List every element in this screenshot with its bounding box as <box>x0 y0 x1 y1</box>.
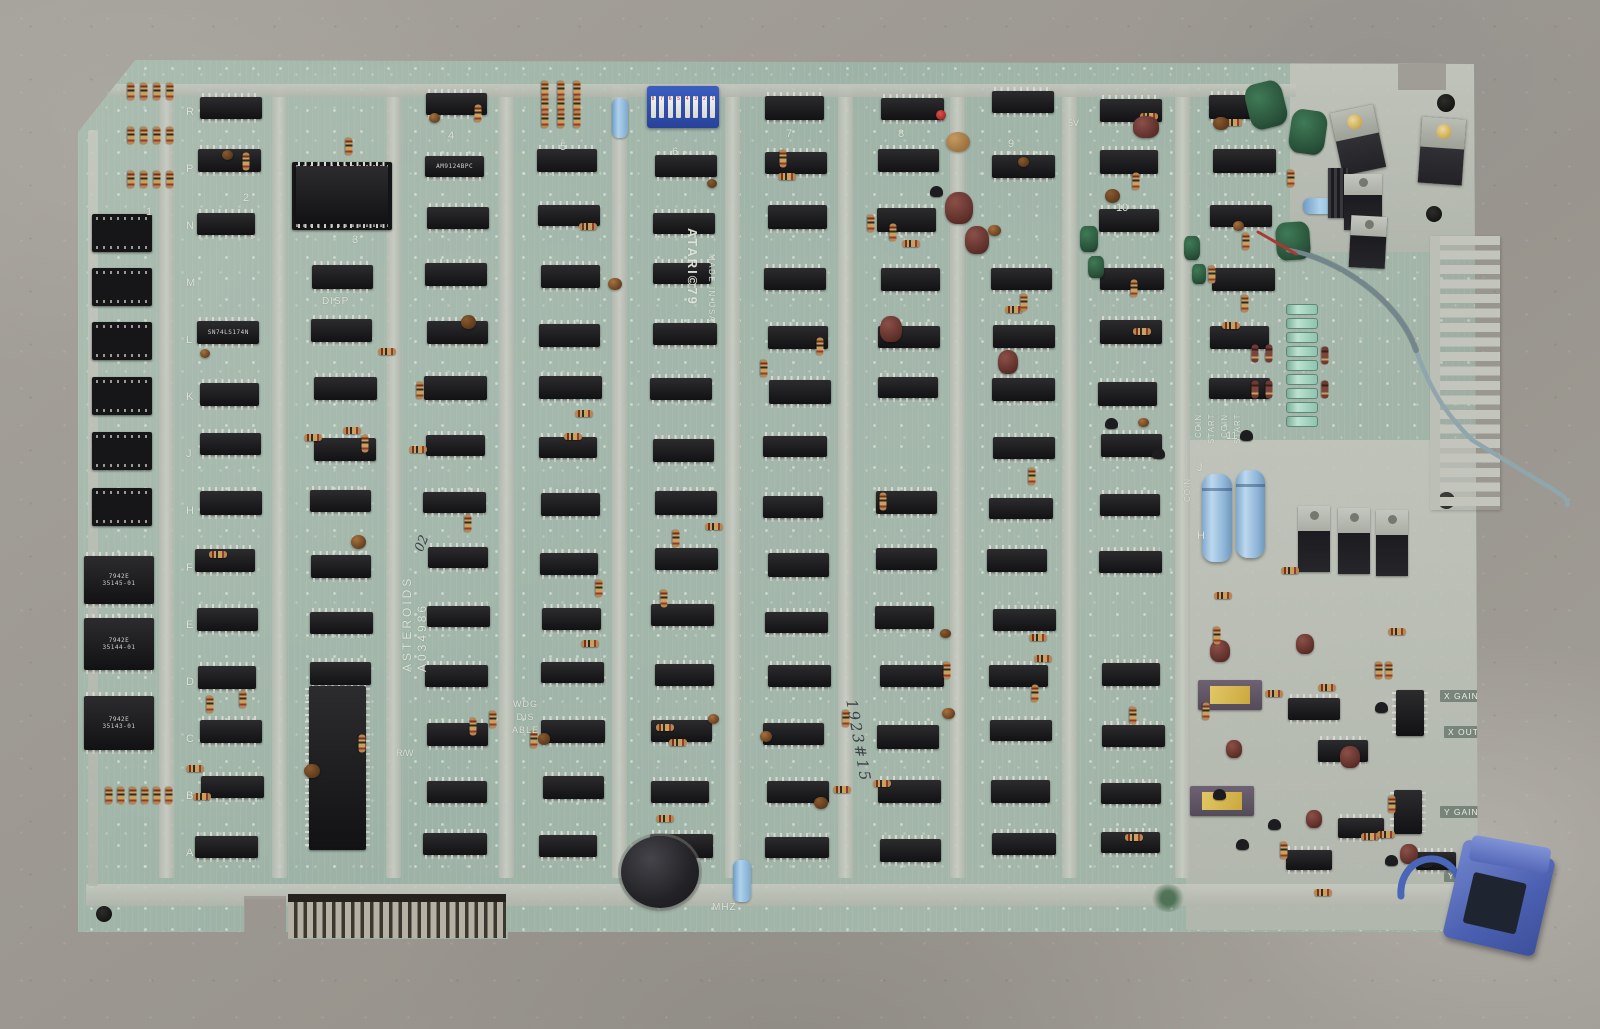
ic-chip <box>991 268 1052 290</box>
ic-chip <box>426 435 485 457</box>
resistor <box>1133 328 1151 335</box>
resistor <box>574 111 581 129</box>
grid-row-letter: K <box>186 391 193 403</box>
ic-chip <box>655 664 715 687</box>
resistor <box>206 695 213 713</box>
maroon-capacitor <box>965 226 989 254</box>
ic-chip <box>1102 663 1160 686</box>
resistor <box>705 523 723 530</box>
ic-chip <box>881 268 941 292</box>
ic-chip <box>423 492 486 514</box>
resistor <box>760 360 767 378</box>
resistor <box>780 150 787 168</box>
ic-chip <box>427 723 488 746</box>
ic-chip <box>200 433 261 455</box>
ic-chip <box>537 149 596 172</box>
dip-switch-toggle: 4 <box>685 96 690 118</box>
eprom-label-line: 35144-01 <box>103 644 136 652</box>
ic-chip <box>539 376 602 399</box>
eprom-label: 7942E35143-01 <box>84 696 154 750</box>
ic-chip <box>877 208 936 232</box>
maroon-capacitor <box>1210 640 1230 662</box>
ic-chip <box>992 91 1053 113</box>
resistor <box>242 153 249 171</box>
disc-capacitor <box>814 797 828 809</box>
resistor <box>656 724 674 731</box>
top-right-cutout <box>1398 64 1446 90</box>
dip-switch-toggle: 6 <box>668 96 673 118</box>
ic-chip <box>427 207 489 229</box>
resistor <box>154 787 161 805</box>
resistor <box>378 348 396 355</box>
resistor <box>193 793 211 800</box>
dip-switch-toggle: 8 <box>651 96 656 118</box>
grid-column-number: 5 <box>560 141 566 153</box>
resistor <box>1389 795 1396 813</box>
resistor <box>166 787 173 805</box>
maroon-capacitor <box>1296 634 1314 654</box>
ic-chip <box>653 263 711 284</box>
grid-row-letter-right: J <box>1197 462 1203 474</box>
resistor <box>1034 655 1052 662</box>
resistor <box>346 137 353 155</box>
resistor <box>1266 381 1273 399</box>
resistor <box>595 580 602 598</box>
maroon-capacitor <box>1400 844 1418 864</box>
silkscreen-asteroids-label: ASTEROIDS A034986 <box>400 576 430 672</box>
ic-chip <box>880 839 941 863</box>
ic-chip <box>768 205 827 229</box>
resistor <box>1029 634 1047 641</box>
grid-row-letter: C <box>186 733 194 745</box>
blue-capacitor <box>733 860 751 902</box>
disc-capacitor <box>1233 221 1244 231</box>
silkscreen-5v-label: 5V <box>1068 118 1079 128</box>
eprom-label-line: 7942E <box>109 716 130 724</box>
transistor <box>1105 418 1118 429</box>
resistor <box>167 127 174 145</box>
grid-column-number: 9 <box>1008 138 1014 150</box>
electrolytic-capacitor <box>1236 470 1265 558</box>
resistor <box>902 240 920 247</box>
resistor <box>1288 169 1295 187</box>
resistor <box>1222 322 1240 329</box>
maroon-capacitor <box>998 350 1018 374</box>
power-bus-trace <box>838 86 853 878</box>
resistor <box>890 224 897 242</box>
silkscreen-coin-start-label: START <box>1207 414 1216 444</box>
resistor <box>1318 684 1336 691</box>
silkscreen-y-gain-label: Y GAIN <box>1440 806 1483 818</box>
resistor <box>1242 233 1249 251</box>
power-bus-trace <box>1062 86 1077 878</box>
ic-chip <box>989 665 1048 687</box>
grid-column-number: 3 <box>352 234 358 246</box>
green-capacitor <box>1275 221 1312 261</box>
ic-chip <box>424 376 487 400</box>
resistor <box>130 787 137 805</box>
resistor <box>1322 347 1329 365</box>
mint-resistor-pack <box>1286 402 1318 413</box>
power-bus-trace <box>499 86 514 878</box>
resistor <box>1209 265 1216 283</box>
ic-chip <box>875 606 934 630</box>
mint-resistor-pack <box>1286 416 1318 427</box>
ic-chip <box>992 378 1055 402</box>
asteroids-pcb: ATARI©79 MADE IN USA ASTEROIDS A034986 0… <box>78 58 1492 940</box>
ic-chip <box>653 439 715 462</box>
grid-column-number: 7 <box>786 128 792 140</box>
resistor <box>475 104 482 122</box>
disc-capacitor <box>708 714 719 724</box>
ic-chip <box>1213 149 1276 173</box>
dip-switch-toggle: 2 <box>702 96 707 118</box>
mint-resistor-pack <box>1286 318 1318 329</box>
resistor <box>490 711 497 729</box>
ic-chip <box>1212 268 1274 290</box>
ic-chip <box>651 604 714 626</box>
blue-capacitor <box>612 98 628 138</box>
ic-chip <box>765 612 828 633</box>
transistor <box>930 186 943 197</box>
ic-chip <box>539 324 599 347</box>
ic-chip <box>314 377 377 399</box>
resistor <box>118 787 125 805</box>
resistor <box>167 171 174 189</box>
resistor <box>1028 467 1035 485</box>
ic-chip <box>651 781 709 803</box>
eprom-chip: 7942E35143-01 <box>84 696 154 750</box>
green-capacitor <box>1080 226 1098 252</box>
silkscreen-x-gain-label: X GAIN <box>1440 690 1483 702</box>
ic-chip <box>425 665 488 687</box>
dip-switch-toggle: 3 <box>693 96 698 118</box>
maroon-capacitor <box>1226 740 1242 758</box>
ic-chip <box>1396 690 1424 736</box>
resistor <box>470 717 477 735</box>
ic-chip <box>311 319 371 342</box>
grid-column-number: 2 <box>243 192 249 204</box>
resistor <box>141 83 148 101</box>
grid-row-letter: M <box>186 277 195 289</box>
ic-chip <box>541 662 604 683</box>
disc-capacitor <box>988 225 1001 236</box>
resistor <box>1021 293 1028 311</box>
ic-chip <box>763 723 824 745</box>
ic-chip <box>1100 320 1162 343</box>
eprom-chip: 7942E35145-01 <box>84 556 154 604</box>
silkscreen-coin-lower-label: COIN <box>1183 478 1192 502</box>
eprom-chip: 7942E35144-01 <box>84 618 154 670</box>
resistor <box>1280 841 1287 859</box>
ic-chip <box>1394 790 1422 834</box>
green-capacitor <box>1088 256 1104 278</box>
ic-chip <box>1100 150 1158 173</box>
ic-chip <box>1099 209 1159 232</box>
resistor <box>661 590 668 608</box>
resistor <box>833 786 851 793</box>
silkscreen-coin-start-label: COIN <box>1194 414 1203 438</box>
ic-chip <box>540 553 599 575</box>
silkscreen-disp-label: DISP <box>322 296 349 307</box>
resistor <box>106 787 113 805</box>
mint-resistor-pack <box>1286 374 1318 385</box>
grid-row-letter: B <box>186 790 193 802</box>
bottom-edge-connector <box>288 894 506 938</box>
ic-chip <box>763 496 823 518</box>
power-bus-trace <box>272 86 287 878</box>
transistor <box>1236 839 1249 850</box>
resistor <box>873 780 891 787</box>
resistor <box>416 381 423 399</box>
grid-row-letter: A <box>186 847 193 859</box>
ic-chip <box>1098 382 1157 406</box>
mounting-hole <box>110 72 120 82</box>
silkscreen-watchdog-label: WDG DIS ABLE <box>512 698 539 737</box>
resistor <box>542 111 549 129</box>
resistor <box>1266 345 1273 363</box>
dip-switch: 87654321 <box>647 86 719 128</box>
grid-column-number: 4 <box>448 130 454 142</box>
board-title: ASTEROIDS <box>400 576 414 672</box>
resistor <box>558 111 565 129</box>
ic-chip <box>1102 725 1165 747</box>
resistor <box>1388 628 1406 635</box>
mint-resistor-pack <box>1286 304 1318 315</box>
ic-chip <box>655 548 719 570</box>
maroon-capacitor <box>1133 116 1159 138</box>
maroon-capacitor <box>945 192 973 224</box>
ic-chip <box>541 265 600 289</box>
ic-chip <box>653 213 715 234</box>
resistor <box>564 433 582 440</box>
grid-row-letter: D <box>186 676 194 688</box>
mounting-hole <box>96 906 112 922</box>
ic-chip <box>427 781 487 803</box>
ic-chip <box>427 321 488 344</box>
resistor <box>141 127 148 145</box>
grid-column-number: 1 <box>146 206 152 218</box>
resistor <box>1322 381 1329 399</box>
dip-switch-toggle: 7 <box>659 96 664 118</box>
grid-row-letter: P <box>186 163 193 175</box>
resistor <box>1252 381 1259 399</box>
transistor <box>1375 702 1388 713</box>
ic-chip <box>878 377 938 399</box>
disc-capacitor <box>1138 418 1148 427</box>
ic-chip <box>653 323 717 345</box>
resistor <box>778 173 796 180</box>
ic-chip <box>200 491 263 515</box>
display-eprom-chip <box>296 166 388 224</box>
ic-chip <box>655 155 717 177</box>
ic-chip <box>427 606 490 627</box>
resistor <box>141 171 148 189</box>
ic-chip <box>765 96 824 120</box>
grid-column-number: 8 <box>898 128 904 140</box>
ic-chip <box>650 378 712 401</box>
power-transistor <box>1349 215 1388 269</box>
silkscreen-coin-start-label: START <box>1233 414 1242 444</box>
ic-chip <box>878 149 939 171</box>
disc-capacitor <box>1213 117 1228 131</box>
ic-chip <box>764 268 825 290</box>
resistor <box>1202 702 1209 720</box>
watchdog-line2: DIS <box>517 712 535 722</box>
resistor <box>867 214 874 232</box>
resistor <box>1125 834 1143 841</box>
resistor <box>880 493 887 511</box>
ic-chip <box>768 665 831 687</box>
resistor <box>1241 294 1248 312</box>
resistor <box>672 530 679 548</box>
power-bus-trace <box>725 86 740 878</box>
disc-capacitor <box>608 278 622 290</box>
ic-chip <box>993 609 1056 631</box>
grid-row-letter: E <box>186 619 193 631</box>
ic-chip <box>1210 326 1270 349</box>
resistor <box>1214 626 1221 644</box>
resistor <box>359 735 366 753</box>
ic-chip <box>198 666 256 689</box>
photo-scene: ATARI©79 MADE IN USA ASTEROIDS A034986 0… <box>0 0 1600 1029</box>
ic-socket <box>92 214 152 252</box>
power-transistor <box>1298 506 1330 572</box>
power-bus-trace <box>612 86 627 878</box>
resistor <box>1252 345 1259 363</box>
green-ink-stain <box>1150 884 1186 912</box>
resistor <box>209 551 227 558</box>
maroon-capacitor <box>1340 746 1360 768</box>
ic-chip <box>541 720 605 743</box>
ic-chip <box>197 213 255 235</box>
resistor <box>154 171 161 189</box>
disc-capacitor <box>461 315 476 328</box>
grid-row-letter: J <box>186 448 192 460</box>
mint-resistor-pack <box>1286 388 1318 399</box>
ram-chip-label: AM9124BPC <box>425 156 484 177</box>
ic-chip <box>310 490 371 512</box>
ic-socket <box>92 268 152 306</box>
ic-chip <box>991 780 1050 803</box>
ic-chip <box>987 549 1047 572</box>
ic-chip <box>311 555 371 578</box>
disc-capacitor <box>351 535 367 549</box>
ic-chip <box>1209 378 1270 399</box>
resistor <box>304 434 322 441</box>
ic-chip <box>880 665 944 687</box>
ic-chip <box>1286 850 1332 870</box>
crystal-can <box>621 836 699 908</box>
ic-chip <box>877 725 940 748</box>
resistor <box>1130 706 1137 724</box>
silkscreen-rw-label: R/W <box>396 748 414 758</box>
ic-chip <box>768 553 829 577</box>
resistor <box>656 815 674 822</box>
resistor <box>343 427 361 434</box>
grid-column-number: 6 <box>672 146 678 158</box>
silkscreen-atari-label: ATARI©79 <box>685 228 700 306</box>
keying-notch <box>244 896 286 936</box>
eprom-label-line: 7942E <box>109 573 130 581</box>
resistor <box>142 787 149 805</box>
mint-resistor-pack <box>1286 332 1318 343</box>
grid-column-number: 10 <box>1116 202 1128 214</box>
ic-chip: SN74LS174N <box>197 321 259 344</box>
ic-socket <box>92 322 152 360</box>
ic-chip <box>543 776 604 799</box>
ic-chip <box>195 836 258 858</box>
mint-resistor-pack <box>1286 360 1318 371</box>
resistor <box>167 83 174 101</box>
ic-chip <box>197 608 258 631</box>
resistor <box>1214 592 1232 599</box>
ic-chip <box>1101 783 1161 805</box>
transistor <box>1385 855 1398 866</box>
resistor <box>128 127 135 145</box>
disc-capacitor <box>429 113 440 123</box>
disc-capacitor <box>200 349 210 358</box>
ic-socket <box>92 432 152 470</box>
resistor <box>1132 173 1139 191</box>
resistor <box>361 434 368 452</box>
ic-chip <box>769 380 831 404</box>
grid-row-letter: N <box>186 220 194 232</box>
ic-chip <box>310 612 373 635</box>
ic-chip <box>539 437 597 458</box>
disc-capacitor <box>942 708 954 719</box>
watchdog-line3: ABLE <box>512 725 539 735</box>
dip-switch-toggle: 5 <box>676 96 681 118</box>
resistor <box>409 446 427 453</box>
maroon-capacitor <box>1306 810 1322 828</box>
ic-chip <box>990 720 1053 741</box>
eprom-label-line: 35143-01 <box>103 723 136 731</box>
maroon-capacitor <box>880 316 902 342</box>
electrolytic-capacitor <box>1202 474 1232 562</box>
silkscreen-x-out-label: X OUT <box>1444 726 1483 738</box>
eprom-label-line: 7942E <box>109 637 130 645</box>
transistor <box>1213 789 1226 800</box>
resistor <box>944 661 951 679</box>
disc-capacitor <box>940 629 950 638</box>
ic-chip <box>428 547 488 568</box>
ic-chip <box>542 608 601 631</box>
disc-capacitor <box>1105 189 1121 203</box>
resistor <box>1376 661 1383 679</box>
disc-capacitor <box>707 179 717 188</box>
mint-resistor-pack <box>1286 346 1318 357</box>
grid-row-letter: R <box>186 106 194 118</box>
tan-disc-capacitor <box>946 132 970 152</box>
power-transistor <box>1376 510 1408 576</box>
resistor <box>1265 690 1283 697</box>
ic-chip <box>1099 551 1162 573</box>
power-transistor <box>1338 508 1370 574</box>
power-bus-trace <box>159 86 174 878</box>
red-led <box>936 110 946 120</box>
ic-socket <box>92 488 152 526</box>
resistor <box>154 127 161 145</box>
ic-chip <box>312 265 373 289</box>
mounting-hole <box>1437 94 1455 112</box>
ic-chip <box>655 491 717 515</box>
resistor <box>1377 831 1395 838</box>
resistor <box>581 640 599 647</box>
resistor <box>1386 661 1393 679</box>
ic-chip <box>765 837 828 858</box>
ic-chip <box>763 436 826 457</box>
